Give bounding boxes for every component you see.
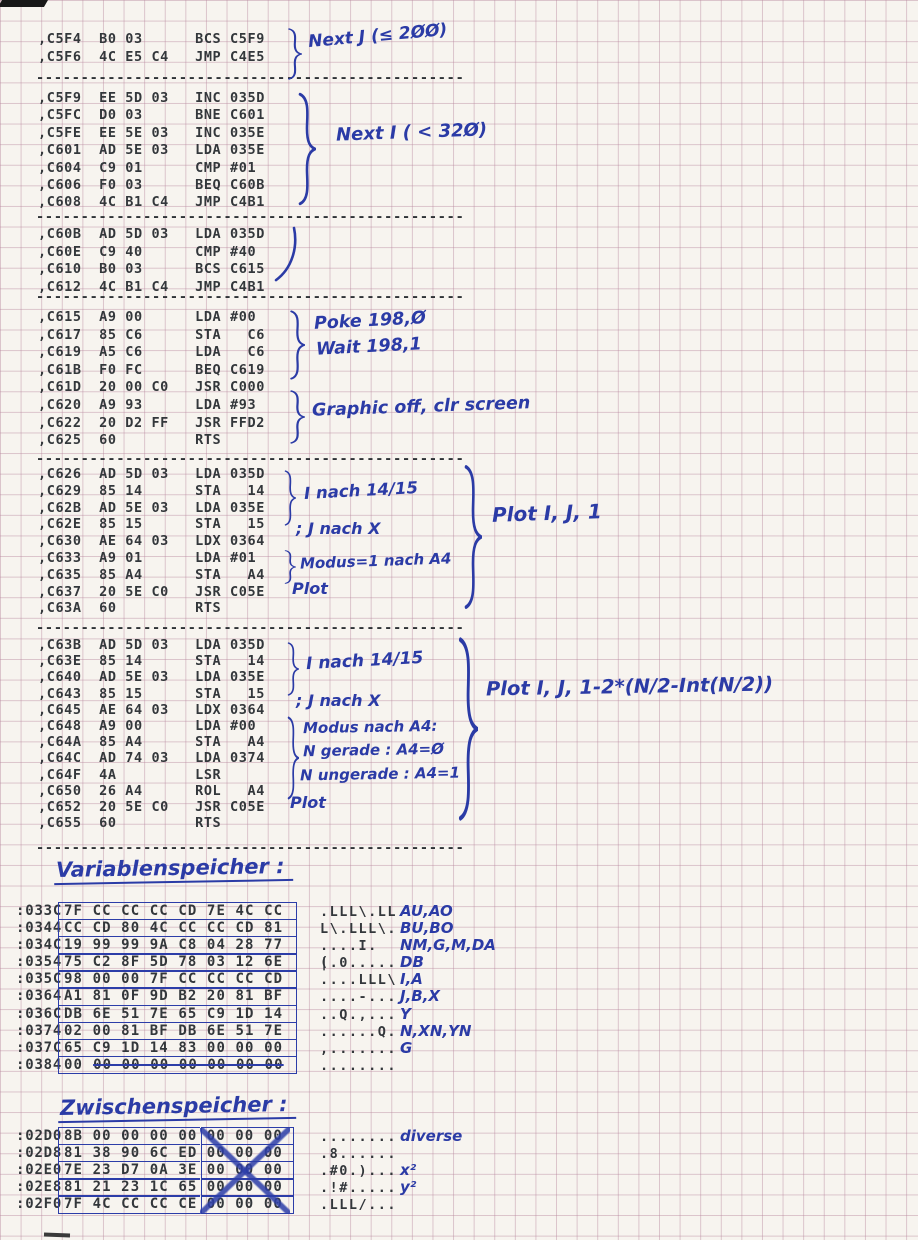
memory-bytes: CC CD 80 4C CC CC CD 81 [58,919,297,937]
memory-bytes: 7E 23 D7 0A 3E [58,1161,200,1179]
memory-label: AU,AO [400,902,453,920]
brace-icon [288,390,305,444]
annotation-plot: Plot [292,579,328,598]
memory-label: BU,BO [400,919,454,937]
memory-label: J,B,X [400,987,440,1005]
brace-icon [462,464,482,610]
separator-line: ----------------------------------------… [36,620,465,636]
memory-address: :0364 [16,988,62,1004]
memory-ascii: .LLL\.LL [320,904,397,920]
scanned-notebook-page: { "separator": "------------------------… [0,0,918,1240]
annotation-plot-call-1: Plot I, J, 1 [492,499,602,527]
memory-address: :034C [16,937,62,953]
annotation-n-ungerade: N ungerade : A4=1 [300,764,460,785]
annotation-poke: Poke 198,Ø [314,308,427,334]
scan-artifact [0,0,48,7]
code-block-5: ,C626 AD 5D 03 LDA 035D ,C629 85 14 STA … [38,466,265,617]
brace-icon [286,716,299,800]
memory-label: x² [400,1161,416,1179]
memory-bytes: 81 38 90 6C ED [58,1144,200,1162]
annotation-next-i: Next I ( < 32Ø) [336,119,488,145]
memory-bytes: 7F CC CC CC CD 7E 4C CC [58,902,297,920]
memory-address: :02D8 [16,1145,62,1161]
annotation-plot-call-2: Plot I, J, 1-2*(N/2-Int(N/2)) [486,672,773,700]
code-block-1: ,C5F4 B0 03 BCS C5F9 ,C5F6 4C E5 C4 JMP … [38,31,265,66]
memory-address: :0374 [16,1023,62,1039]
memory-ascii: .LLL/... [320,1197,397,1213]
memory-ascii: ,....... [320,1041,397,1057]
annotation-n-gerade: N gerade : A4=Ø [303,740,444,760]
memory-address: :02F0 [16,1196,62,1212]
separator-line: ----------------------------------------… [36,70,465,86]
memory-bytes: 7F 4C CC CC CE [58,1195,200,1213]
memory-address: :02D0 [16,1128,62,1144]
memory-ascii: ..Q.,... [320,1007,397,1023]
section-title-variablenspeicher: Variablenspeicher : [54,854,293,885]
memory-bytes-crossed: 00 00 00 [201,1161,294,1179]
annotation-next-j: Next J (≤ 2ØØ) [307,20,448,52]
memory-label: NM,G,M,DA [400,936,496,954]
memory-label: diverse [400,1127,462,1145]
memory-bytes: 65 C9 1D 14 83 00 00 00 [58,1039,297,1057]
memory-ascii: ........ [320,1058,397,1074]
scan-artifact [44,1233,70,1238]
memory-ascii: ........ [320,1129,397,1145]
memory-ascii: .!#..... [320,1180,397,1196]
memory-label: DB [400,953,424,971]
annotation-graphic-off: Graphic off, clr screen [312,393,531,421]
memory-bytes-crossed: 00 00 00 00 00 00 00 [93,1057,284,1073]
memory-bytes: 19 99 99 9A C8 04 28 77 [58,936,297,954]
memory-ascii: .#0.)... [320,1163,397,1179]
memory-ascii: .8...... [320,1146,397,1162]
annotation-j-nach: ; J nach X [296,519,380,538]
memory-bytes-crossed: 00 00 00 [201,1127,294,1145]
memory-address: :0354 [16,954,62,970]
memory-address: :0344 [16,920,62,936]
memory-label: N,XN,YN [400,1022,471,1040]
memory-bytes: 0000 00 00 00 00 00 00 [58,1056,297,1074]
memory-address: :037C [16,1040,62,1056]
code-block-3: ,C60B AD 5D 03 LDA 035D ,C60E C9 40 CMP … [38,226,265,296]
memory-ascii: ....-... [320,989,397,1005]
brace-tail-icon [274,226,298,284]
annotation-i-nach-2: I nach 14/15 [306,648,424,674]
brace-icon [286,642,299,696]
memory-bytes: 8B 00 00 00 00 [58,1127,200,1145]
memory-bytes: 75 C2 8F 5D 78 03 12 6E [58,953,297,971]
annotation-modus: Modus=1 nach A4 [300,549,452,572]
memory-ascii: ....LLL\ [320,972,397,988]
section-title-zwischenspeicher: Zwischenspeicher : [58,1092,296,1123]
memory-address: :02E8 [16,1179,62,1195]
code-block-2: ,C5F9 EE 5D 03 INC 035D ,C5FC D0 03 BNE … [38,90,265,212]
memory-ascii: |.0..... [320,955,397,971]
memory-label: G [400,1039,412,1057]
memory-bytes-crossed: 00 00 00 [201,1144,294,1162]
code-block-6: ,C63B AD 5D 03 LDA 035D ,C63E 85 14 STA … [38,637,265,831]
annotation-modus-2: Modus nach A4: [303,717,438,737]
brace-icon [456,636,478,822]
annotation-i-nach: I nach 14/15 [304,478,419,503]
memory-address: :033C [16,903,62,919]
separator-line: ----------------------------------------… [36,209,465,225]
memory-bytes: 98 00 00 7F CC CC CC CD [58,970,297,988]
memory-bytes-crossed: 00 00 00 [201,1178,294,1196]
memory-label: Y [400,1005,411,1023]
memory-bytes-kept: 00 [64,1057,83,1073]
memory-ascii: ......Q. [320,1024,397,1040]
memory-ascii: L\.LLL\. [320,921,397,937]
separator-line: ----------------------------------------… [36,840,465,856]
memory-bytes: 02 00 81 BF DB 6E 51 7E [58,1022,297,1040]
annotation-j-nach-2: ; J nach X [296,691,380,710]
code-block-4: ,C615 A9 00 LDA #00 ,C617 85 C6 STA C6 ,… [38,309,265,450]
annotation-wait: Wait 198,1 [316,334,423,360]
memory-address: :035C [16,971,62,987]
memory-bytes: 81 21 23 1C 65 [58,1178,200,1196]
annotation-plot-2: Plot [290,793,326,812]
memory-address: :02E0 [16,1162,62,1178]
brace-icon [288,310,305,380]
brace-icon [286,28,302,80]
brace-icon [296,92,316,206]
separator-line: ----------------------------------------… [36,289,465,305]
memory-label: I,A [400,970,423,988]
memory-bytes: A1 81 0F 9D B2 20 81 BF [58,987,297,1005]
memory-address: :0384 [16,1057,62,1073]
separator-line: ----------------------------------------… [36,451,465,467]
brace-icon [283,470,296,526]
memory-bytes: DB 6E 51 7E 65 C9 1D 14 [58,1005,297,1023]
memory-label: y² [400,1178,416,1196]
memory-address: :036C [16,1006,62,1022]
memory-bytes-crossed: 00 00 00 [201,1195,294,1213]
